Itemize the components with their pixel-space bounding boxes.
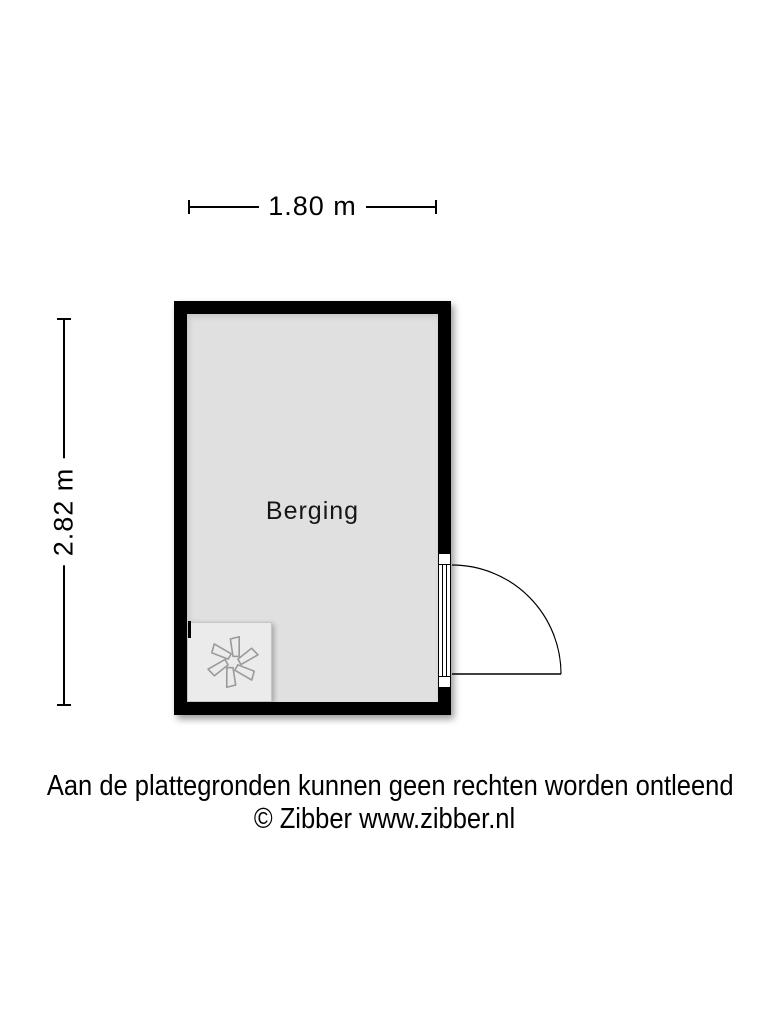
footer: Aan de plattegronden kunnen geen rechten…: [0, 770, 768, 836]
floor-plan-page: 1.80 m 2.82 m Berging: [0, 0, 768, 1024]
door-opening: [438, 553, 451, 688]
dimension-width: 1.80 m: [188, 190, 437, 223]
disclaimer-text: Aan de plattegronden kunnen geen rechten…: [0, 770, 768, 803]
dimension-width-label: 1.80 m: [259, 191, 366, 222]
dimension-width-tick-right: [435, 200, 437, 214]
dimension-width-tick-left: [188, 200, 190, 214]
door-jamb-top: [438, 553, 451, 565]
dimension-height-label: 2.82 m: [48, 459, 79, 566]
ventilation-unit: [187, 622, 272, 702]
credit-text: © Zibber www.zibber.nl: [0, 803, 768, 836]
door-swing: [452, 565, 561, 674]
dimension-height-tick-top: [57, 318, 71, 320]
door-jamb-bottom: [438, 676, 451, 688]
room-name-label: Berging: [187, 497, 438, 526]
dimension-height-tick-bottom: [57, 704, 71, 706]
room-berging: Berging: [174, 301, 451, 715]
dimension-height: 2.82 m: [47, 318, 80, 706]
door-swing-arc: [452, 565, 561, 674]
door-frame: [438, 565, 451, 676]
